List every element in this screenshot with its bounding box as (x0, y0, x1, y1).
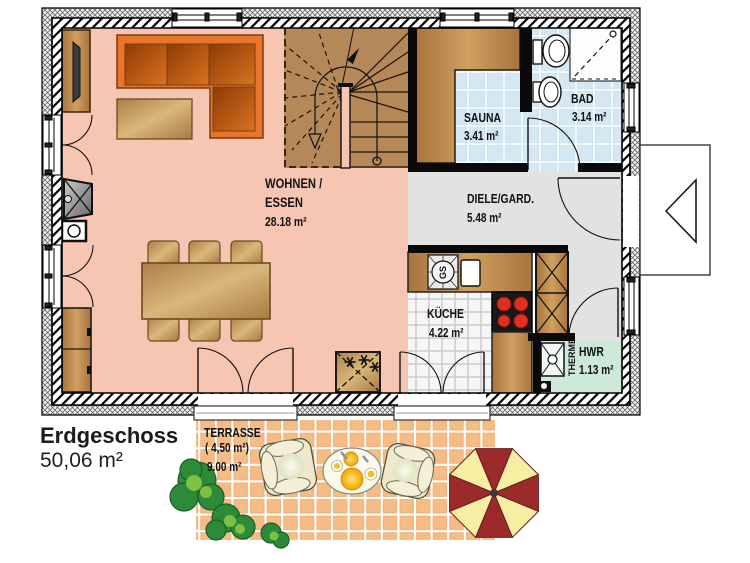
window (440, 9, 514, 27)
dining-table (142, 263, 270, 319)
room-label-hwr: HWR (579, 345, 604, 358)
coffee-table (117, 99, 192, 139)
dining-set (142, 241, 270, 341)
dining-chair (231, 317, 262, 341)
kitchen-counter-column (492, 332, 532, 393)
oven-box (62, 221, 86, 241)
room-label-bad: BAD (571, 92, 594, 105)
floor-plan-page: GS THERME (0, 0, 750, 563)
fireplace (64, 179, 92, 219)
water-heater: THERME (541, 338, 577, 376)
room-area-bad: 3.14 m² (572, 111, 606, 124)
dining-chair (189, 241, 220, 265)
dishwasher: GS (428, 255, 458, 289)
washbasin-icon (533, 77, 561, 107)
floor-plan-drawing: GS THERME (0, 0, 750, 563)
room-area-kueche: 4.22 m² (429, 327, 463, 340)
window (624, 83, 639, 132)
sideboard (62, 308, 91, 392)
room-area-hwr: 1.13 m² (579, 364, 613, 377)
parasol-icon (450, 449, 539, 538)
dining-chair (231, 241, 262, 265)
room-label-diele: DIELE/GARD. (467, 192, 534, 205)
room-area-wohnen: 28.18 m² (265, 215, 307, 228)
window (624, 277, 639, 335)
dining-chair (189, 317, 220, 341)
dining-chair (148, 317, 179, 341)
stair-spine (341, 86, 350, 168)
room-area-diele: 5.48 m² (467, 212, 501, 225)
dishwasher-label: GS (438, 266, 448, 279)
stove (492, 292, 532, 332)
kitchen-sink (461, 260, 480, 286)
toilet-icon (533, 35, 569, 67)
dining-chair (148, 241, 179, 265)
terrace-table (323, 448, 381, 494)
room-label-sauna: SAUNA (464, 111, 501, 124)
tall-cabinet (536, 252, 568, 334)
plant-stand (336, 352, 381, 392)
window (172, 9, 242, 27)
staircase (284, 22, 408, 168)
entrance-porch (640, 145, 710, 275)
terrace-armchair (257, 436, 318, 497)
room-label-kueche: KÜCHE (427, 307, 464, 320)
room-label-wohnen-line2: ESSEN (265, 195, 303, 209)
room-label-wohnen-line1: WOHNEN / (265, 176, 322, 190)
shower (570, 28, 621, 81)
floor-total-area: 50,06 m² (40, 449, 123, 473)
room-area-sauna: 3.41 m² (464, 130, 498, 143)
room-area-terrasse: 9.00 m² (207, 461, 241, 474)
floor-title: Erdgeschoss (40, 423, 178, 449)
water-heater-label: THERME (567, 338, 577, 376)
room-label-terrasse: TERRASSE (204, 426, 261, 439)
room-area-terrasse-paren: ( 4,50 m²) (205, 442, 249, 455)
tv-cabinet (62, 30, 90, 112)
